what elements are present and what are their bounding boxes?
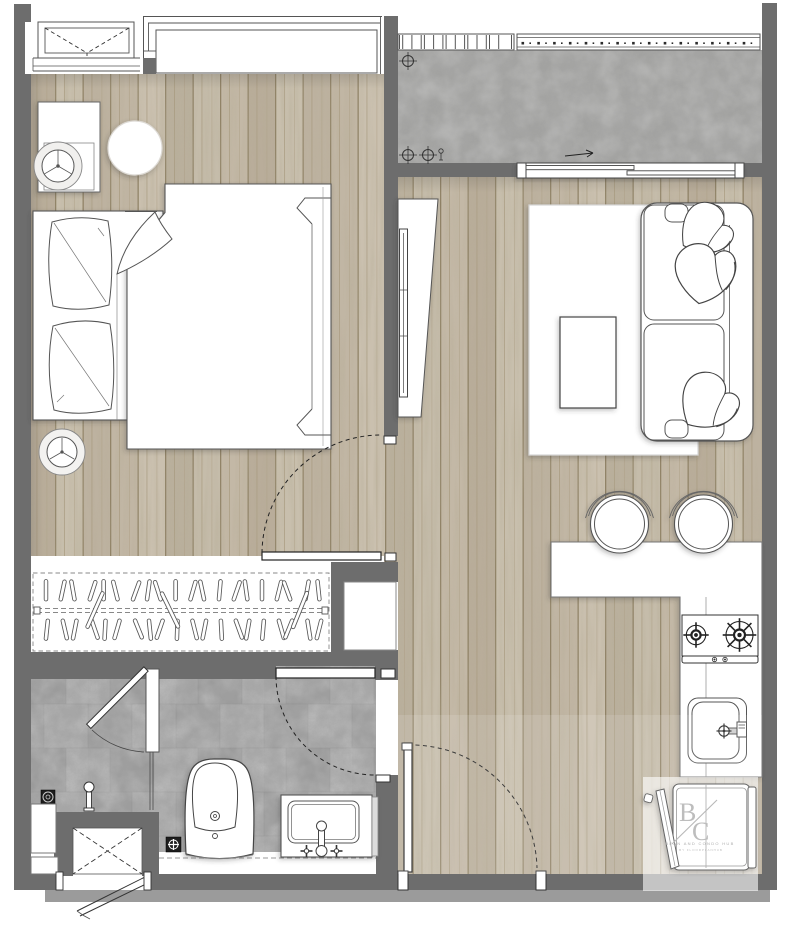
svg-text:BY FLOORPLANHUB: BY FLOORPLANHUB <box>679 848 723 852</box>
svg-text:BEAN AND CONDO HUB: BEAN AND CONDO HUB <box>665 841 734 846</box>
